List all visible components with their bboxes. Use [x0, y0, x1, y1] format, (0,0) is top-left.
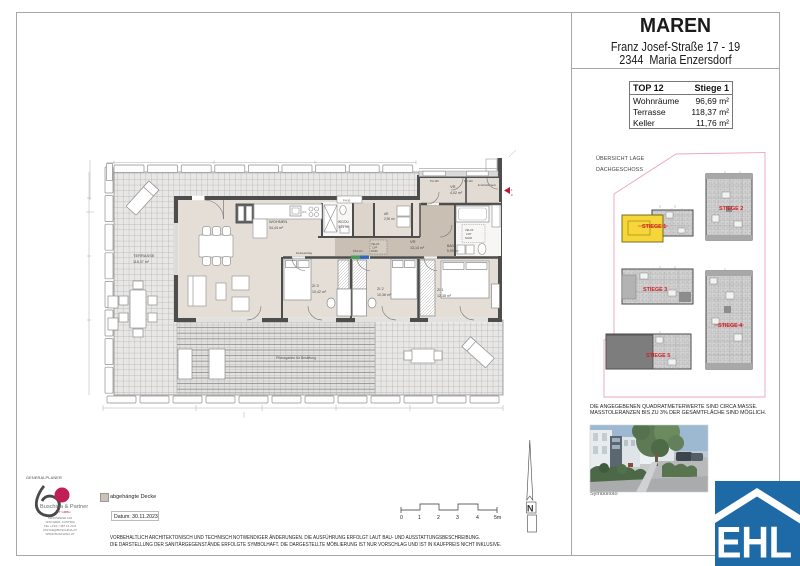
svg-text:Drehausschlag: Drehausschlag: [296, 252, 313, 255]
svg-text:Zi 2: Zi 2: [377, 286, 384, 291]
svg-text:60x90: 60x90: [465, 236, 473, 240]
svg-text:EHL: EHL: [716, 519, 792, 566]
svg-text:60/90: 60/90: [371, 249, 378, 253]
svg-text:STIEGE 3: STIEGE 3: [643, 287, 667, 293]
svg-text:5,99 m²: 5,99 m²: [447, 249, 459, 253]
svg-text:WC/DU: WC/DU: [338, 220, 349, 224]
svg-text:VELUX: VELUX: [371, 242, 380, 246]
svg-text:WOHNEN: WOHNEN: [269, 219, 287, 224]
svg-text:AR: AR: [384, 212, 389, 216]
svg-text:Zi 1: Zi 1: [437, 287, 444, 292]
svg-text:2,90 m²: 2,90 m²: [384, 217, 395, 221]
svg-text:2: 2: [511, 193, 513, 197]
svg-text:VR: VR: [450, 184, 456, 189]
svg-text:VELUX: VELUX: [465, 228, 474, 232]
svg-text:CVP: CVP: [372, 246, 378, 250]
svg-text:13,14 m²: 13,14 m²: [410, 246, 425, 250]
svg-text:4,02 m²: 4,02 m²: [450, 191, 463, 195]
svg-text:PKZ-VH: PKZ-VH: [353, 249, 363, 253]
svg-text:10,42 m²: 10,42 m²: [312, 290, 327, 294]
svg-text:118,37 m²: 118,37 m²: [133, 260, 150, 264]
svg-text:1: 1: [511, 188, 513, 192]
svg-text:34,44 m²: 34,44 m²: [269, 226, 284, 230]
svg-text:12,38 m²: 12,38 m²: [437, 294, 452, 298]
svg-text:1: 1: [418, 515, 421, 521]
svg-text:GS: GS: [302, 210, 306, 214]
svg-text:PH 126: PH 126: [430, 179, 439, 183]
svg-text:STIEGE 4: STIEGE 4: [718, 323, 742, 329]
svg-text:STIEGE 1: STIEGE 1: [642, 224, 666, 230]
svg-text:STIEGE 2: STIEGE 2: [719, 206, 743, 212]
svg-text:STIEGE 5: STIEGE 5: [646, 353, 670, 359]
svg-text:3,21 m²: 3,21 m²: [338, 225, 349, 229]
svg-text:PH 120: PH 120: [464, 179, 473, 183]
svg-text:VR: VR: [410, 239, 416, 244]
svg-text:2: 2: [437, 515, 440, 521]
svg-text:BAD: BAD: [447, 244, 455, 248]
svg-text:4: 4: [476, 515, 479, 521]
svg-text:Pflanzgarten für Bestiftung: Pflanzgarten für Bestiftung: [276, 356, 316, 360]
svg-text:ZT GMBH: ZT GMBH: [57, 510, 70, 514]
svg-text:N: N: [527, 504, 534, 514]
svg-text:WWW.BUSCHINA.AT: WWW.BUSCHINA.AT: [45, 532, 74, 536]
svg-text:5m: 5m: [494, 515, 501, 521]
svg-text:3: 3: [456, 515, 459, 521]
svg-text:TERRASSE: TERRASSE: [133, 253, 155, 258]
svg-text:0: 0: [400, 515, 403, 521]
svg-text:CVP: CVP: [466, 232, 472, 236]
svg-text:PH 90: PH 90: [343, 199, 351, 203]
svg-text:Zi 3: Zi 3: [312, 283, 319, 288]
svg-text:10,36 m²: 10,36 m²: [377, 293, 392, 297]
svg-text:E-Verteilerraum: E-Verteilerraum: [478, 183, 496, 187]
